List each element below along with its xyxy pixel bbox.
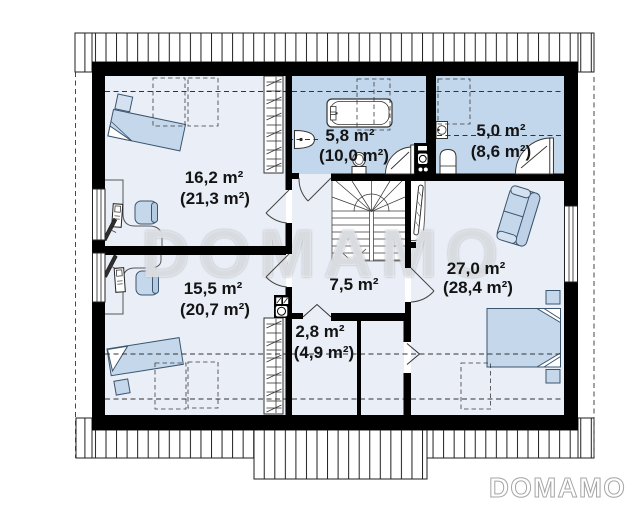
svg-text:5,0 m²: 5,0 m²	[476, 121, 525, 140]
svg-text:(21,3 m²): (21,3 m²)	[180, 189, 250, 208]
svg-text:(10,0 m²): (10,0 m²)	[319, 146, 389, 165]
svg-text:2,8 m²: 2,8 m²	[295, 322, 344, 341]
svg-text:(20,7 m²): (20,7 m²)	[180, 300, 250, 319]
svg-text:7,5 m²: 7,5 m²	[329, 275, 378, 294]
svg-text:15,5 m²: 15,5 m²	[184, 279, 243, 298]
svg-text:27,0 m²: 27,0 m²	[447, 259, 506, 278]
svg-text:(28,4 m²): (28,4 m²)	[443, 278, 513, 297]
svg-text:DOMAMO: DOMAMO	[489, 472, 626, 503]
svg-text:16,2 m²: 16,2 m²	[185, 168, 244, 187]
svg-text:(8,6 m²): (8,6 m²)	[471, 142, 531, 161]
svg-text:(4,9 m²): (4,9 m²)	[294, 343, 354, 362]
svg-text:5,8 m²: 5,8 m²	[325, 126, 374, 145]
